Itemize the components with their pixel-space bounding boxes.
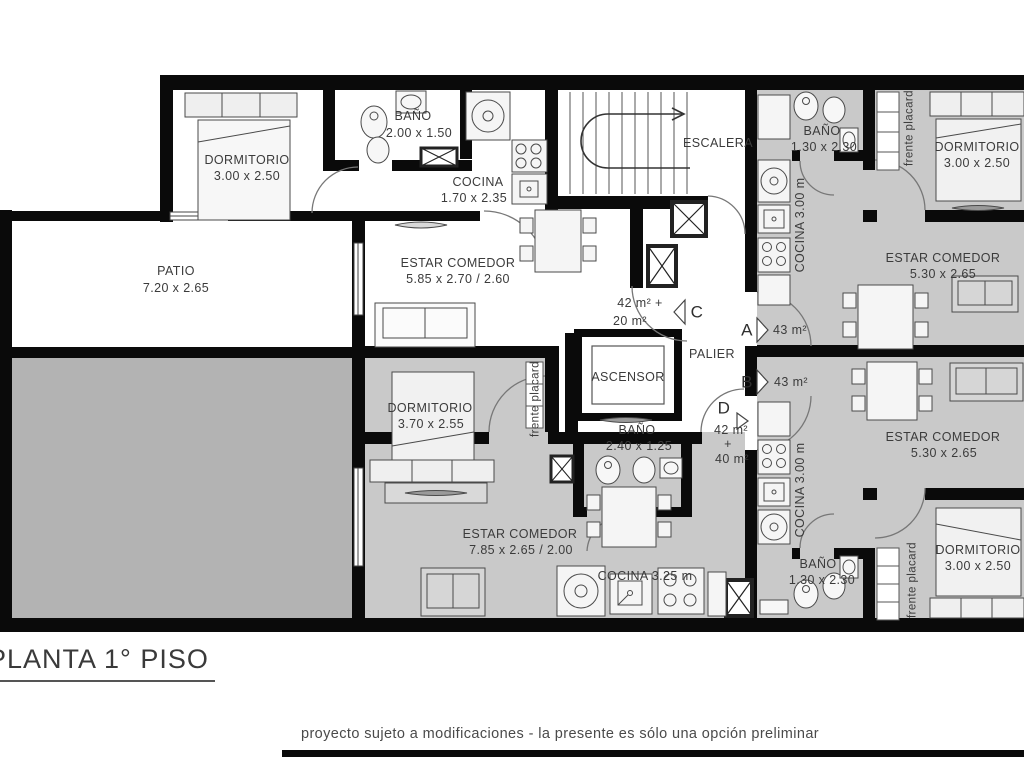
sofa-estar-d (421, 568, 485, 616)
closet-label: frente placard (904, 90, 916, 166)
room-label: ESCALERA (683, 137, 753, 150)
unit-a-letter: A (741, 322, 753, 339)
room-dims: 3.70 x 2.55 (398, 418, 464, 431)
closet-label: frente placard (907, 542, 919, 618)
room-label: COCINA 3.00 m (794, 178, 807, 273)
room-dims: 1.30 x 2.30 (789, 574, 855, 587)
unit-c-area: 20 m² (613, 315, 647, 328)
room-label: COCINA 3.00 m (794, 443, 807, 538)
tv-cabinet-d (385, 483, 487, 503)
shelf-palier (600, 418, 652, 423)
room-label: BAÑO (394, 110, 431, 123)
room-dims: 2.00 x 1.50 (386, 127, 452, 140)
room-label: BAÑO (618, 424, 655, 437)
room-label: ESTAR COMEDOR (886, 252, 1001, 265)
unit-d-area: 42 m² (714, 424, 748, 437)
room-label: ESTAR COMEDOR (886, 431, 1001, 444)
room-label: BAÑO (799, 558, 836, 571)
floorplan-page: DORMITORIO 3.00 x 2.50 BAÑO 2.00 x 1.50 … (0, 0, 1024, 768)
room-dims: 1.30 x 2.30 (791, 141, 857, 154)
bottom-rule (282, 750, 1024, 757)
sofa-estar-a (952, 276, 1018, 312)
unit-d-letter: D (718, 400, 731, 417)
room-label: COCINA 3.25 m (598, 570, 693, 583)
kitchen-b (758, 402, 790, 544)
stairs (570, 92, 690, 194)
unit-b-area: 43 m² (774, 376, 808, 389)
disclaimer-text: proyecto sujeto a modificaciones - la pr… (0, 726, 1024, 742)
room-label: DORMITORIO (387, 402, 472, 415)
room-dims: 3.00 x 2.50 (944, 157, 1010, 170)
room-label: ASCENSOR (591, 371, 664, 384)
unit-a-area: 43 m² (773, 324, 807, 337)
sofa-estar-b (950, 363, 1023, 401)
room-dims: 5.85 x 2.70 / 2.60 (406, 273, 510, 286)
sofa-estar-c (375, 303, 475, 347)
room-label: DORMITORIO (204, 154, 289, 167)
room-label: DORMITORIO (935, 544, 1020, 557)
room-label: BAÑO (803, 125, 840, 138)
room-label: ESTAR COMEDOR (463, 528, 578, 541)
unit-d-area: 40 m² (715, 453, 749, 466)
plan-title: PLANTA 1° PISO (0, 644, 215, 682)
unit-c-marker (674, 300, 685, 324)
unit-c-area: 42 m² + (617, 297, 663, 310)
room-label: DORMITORIO (934, 141, 1019, 154)
room-dims: 5.30 x 2.65 (911, 447, 977, 460)
closet-label: frente placard (530, 361, 542, 437)
room-dims: 7.20 x 2.65 (143, 282, 209, 295)
unit-d-area: + (724, 438, 732, 451)
room-dims: 3.00 x 2.50 (945, 560, 1011, 573)
room-dims: 3.00 x 2.50 (214, 170, 280, 183)
unit-c-letter: C (691, 304, 704, 321)
table-estar-c (520, 210, 596, 272)
room-label: COCINA (452, 176, 503, 189)
room-dims: 1.70 x 2.35 (441, 192, 507, 205)
room-label: PALIER (689, 348, 735, 361)
room-dims: 2.40 x 1.25 (606, 440, 672, 453)
room-dims: 7.85 x 2.65 / 2.00 (469, 544, 573, 557)
room-dims: 5.30 x 2.65 (910, 268, 976, 281)
room-label: PATIO (157, 265, 195, 278)
unit-b-letter: B (741, 374, 753, 391)
room-label: ESTAR COMEDOR (401, 257, 516, 270)
